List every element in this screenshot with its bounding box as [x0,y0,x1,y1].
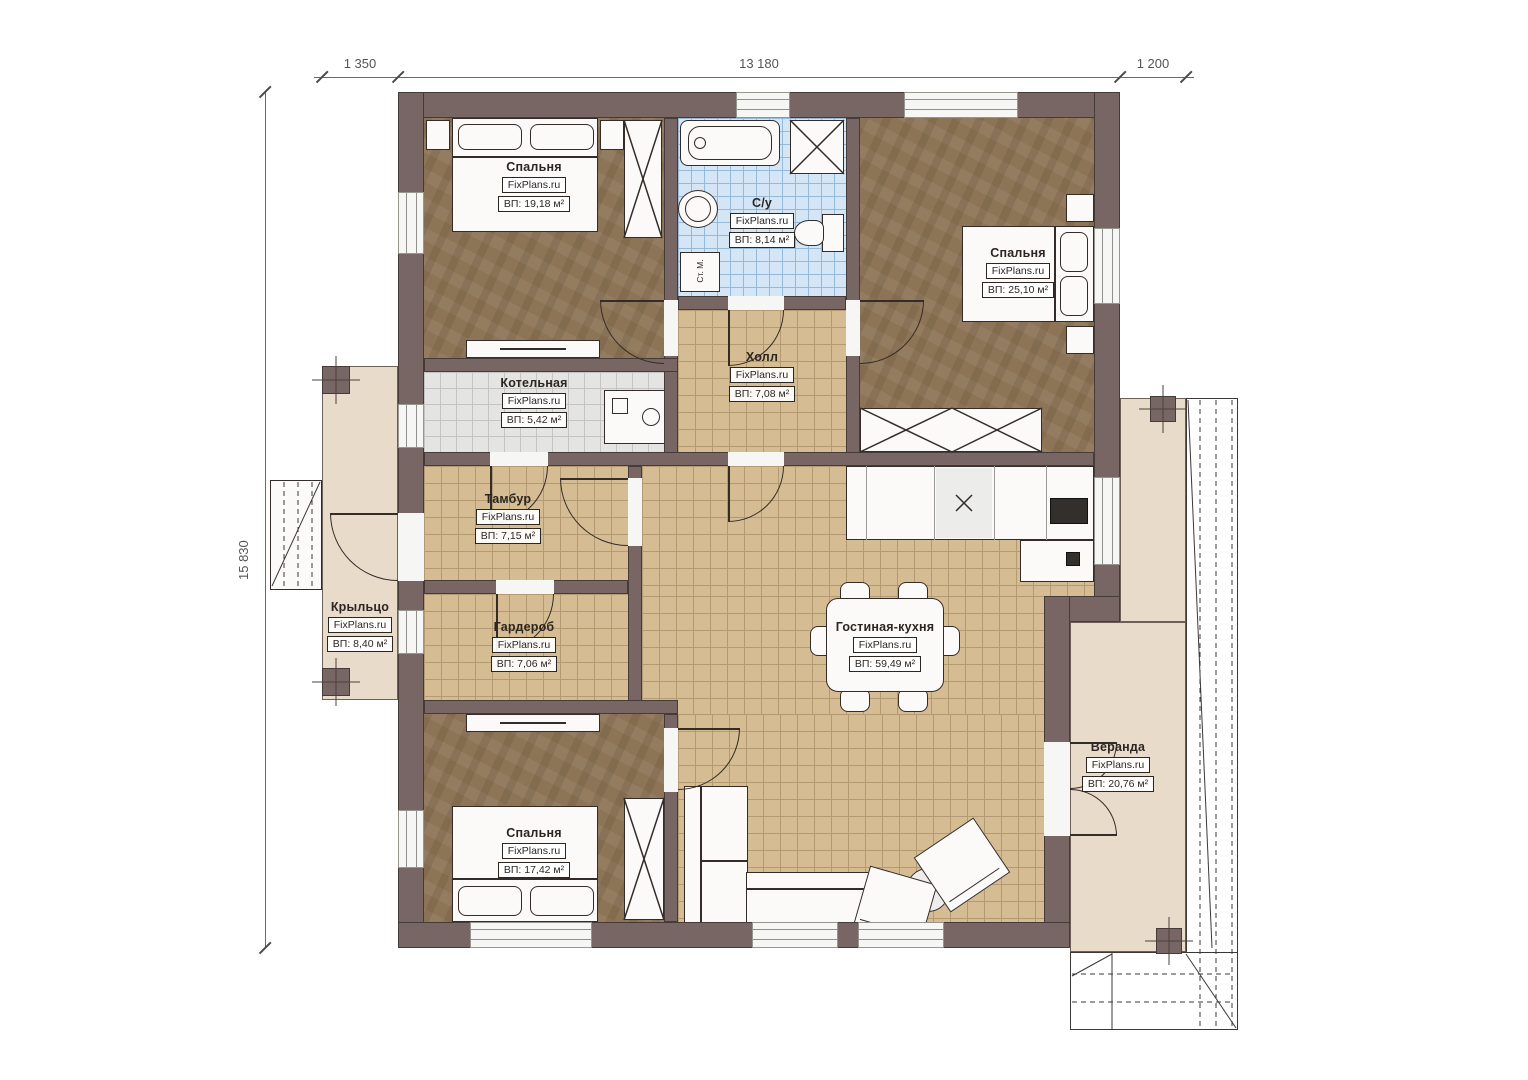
nightstand [426,120,450,150]
window [904,92,1018,118]
wall-interior [846,118,860,466]
counter-divider [1046,466,1047,540]
room-brand: FixPlans.ru [328,617,393,633]
veranda-roof-edge-right [1186,398,1238,1030]
door-opening [628,478,642,546]
dimension-line-top [314,77,1194,78]
window [752,922,838,948]
room-brand: FixPlans.ru [492,637,557,653]
dimension-label-top-center: 13 180 [689,56,829,71]
room-area: ВП: 7,15 м² [475,528,541,544]
pillow [458,124,522,150]
sofa-back-line [700,786,702,938]
room-name: Гардероб [494,620,555,634]
dimension-label-left: 15 830 [236,470,251,580]
room-brand: FixPlans.ru [502,393,567,409]
counter-divider [934,466,935,540]
boiler-dial [642,408,660,426]
kitchen-sink-cell [936,468,992,538]
wall-interior [664,118,678,466]
room-area: ВП: 19,18 м² [498,196,570,212]
room-label-porch: Крыльцо FixPlans.ru ВП: 8,40 м² [305,600,415,652]
oven [1066,552,1080,566]
boiler-box [612,398,628,414]
veranda-post-top [1150,396,1176,422]
door-opening [664,728,678,792]
wall-interior [424,700,678,714]
sofa-chaise-line [746,888,874,890]
room-area: ВП: 7,08 м² [729,386,795,402]
room-brand: FixPlans.ru [730,367,795,383]
nightstand [1066,326,1094,354]
room-name: Спальня [990,246,1045,260]
window [1094,477,1120,565]
veranda-roof-edge-bottom [1070,952,1238,1030]
dimension-label-top-right: 1 200 [1110,56,1196,71]
room-name: С/у [752,196,772,210]
room-label-bedroom-3: Спальня FixPlans.ru ВП: 17,42 м² [469,826,599,878]
door-opening [496,580,554,594]
room-label-hall: Холл FixPlans.ru ВП: 7,08 м² [702,350,822,402]
wall-interior [424,358,678,372]
sliding-wardrobe [860,408,1042,452]
room-name: Гостиная-кухня [836,620,935,634]
room-brand: FixPlans.ru [476,509,541,525]
window [398,192,424,254]
wardrobe-unit [624,120,662,238]
shower-tray [790,120,844,174]
nightstand [600,120,624,150]
door-opening [846,300,860,356]
door-opening [664,300,678,356]
fridge [1050,498,1088,524]
room-brand: FixPlans.ru [502,177,567,193]
room-name: Спальня [506,826,561,840]
bed-blanket-line [452,878,598,880]
pillow [530,886,594,916]
room-area: ВП: 5,42 м² [501,412,567,428]
room-label-living-kitchen: Гостиная-кухня FixPlans.ru ВП: 59,49 м² [813,620,957,672]
room-name: Крыльцо [331,600,389,614]
sofa-section-vertical [684,786,748,938]
bathtub-drain [694,137,706,149]
window [398,810,424,868]
room-brand: FixPlans.ru [502,843,567,859]
door-opening [728,296,784,310]
pillow [458,886,522,916]
room-area: ВП: 59,49 м² [849,656,921,672]
bed-blanket-line [452,156,598,158]
room-name: Холл [746,350,778,364]
room-name: Спальня [506,160,561,174]
counter-divider [994,466,995,540]
nightstand [1066,194,1094,222]
room-label-vestibule: Тамбур FixPlans.ru ВП: 7,15 м² [453,492,563,544]
room-area: ВП: 7,06 м² [491,656,557,672]
door-opening [490,452,548,466]
wardrobe-unit [624,798,664,920]
dresser-handle [500,722,566,724]
sofa-cushion-line [700,860,748,862]
porch-post-top [322,366,350,394]
room-name: Веранда [1091,740,1145,754]
room-area: ВП: 25,10 м² [982,282,1054,298]
window [736,92,790,118]
veranda-post-bottom [1156,928,1182,954]
washing-machine-label: Ст. М. [695,254,705,288]
room-brand: FixPlans.ru [986,263,1051,279]
dimension-label-top-left: 1 350 [322,56,398,71]
porch-post-bottom [322,668,350,696]
room-label-boiler-room: Котельная FixPlans.ru ВП: 5,42 м² [472,376,596,428]
toilet-tank [822,214,844,252]
room-area: ВП: 17,42 м² [498,862,570,878]
floor-plan-canvas: Ст. М. [0,0,1528,1080]
room-label-wardrobe-room: Гардероб FixPlans.ru ВП: 7,06 м² [464,620,584,672]
room-label-bathroom: С/у FixPlans.ru ВП: 8,14 м² [707,196,817,248]
room-label-bedroom-2: Спальня FixPlans.ru ВП: 25,10 м² [953,246,1083,298]
counter-divider [866,466,867,540]
porch-steps [270,480,322,590]
door-opening-entry [398,513,424,581]
room-area: ВП: 8,14 м² [729,232,795,248]
room-label-veranda: Веранда FixPlans.ru ВП: 20,76 м² [1063,740,1173,792]
window [398,404,424,448]
room-brand: FixPlans.ru [730,213,795,229]
window [1094,228,1120,304]
room-area: ВП: 20,76 м² [1082,776,1154,792]
room-area: ВП: 8,40 м² [327,636,393,652]
room-label-bedroom-1: Спальня FixPlans.ru ВП: 19,18 м² [469,160,599,212]
room-name: Котельная [500,376,567,390]
door-opening [728,452,784,466]
room-name: Тамбур [485,492,532,506]
room-brand: FixPlans.ru [853,637,918,653]
window [858,922,944,948]
dimension-line-left [265,92,266,948]
pillow [530,124,594,150]
room-brand: FixPlans.ru [1086,757,1151,773]
window [470,922,592,948]
kitchen-cabinet-right [1020,540,1094,582]
veranda-deck-upper [1120,398,1186,622]
dresser-handle [500,348,566,350]
